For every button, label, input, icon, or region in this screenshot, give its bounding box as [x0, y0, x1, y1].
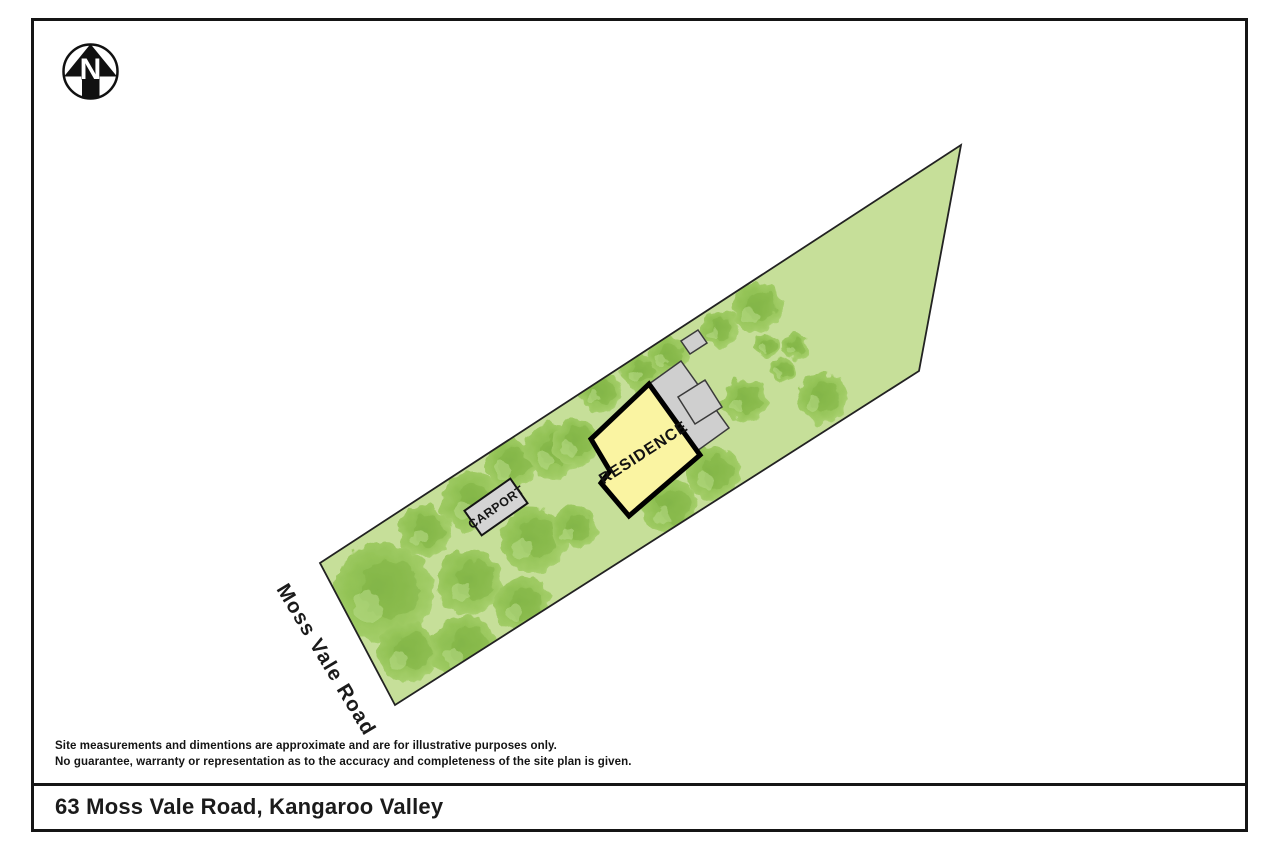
title-separator	[31, 783, 1248, 786]
tree	[723, 378, 767, 422]
north-letter: N	[80, 53, 102, 86]
tree	[755, 334, 779, 358]
tree	[399, 505, 451, 557]
tree	[553, 506, 597, 550]
tree	[437, 549, 503, 615]
north-arrow-icon: N	[64, 44, 118, 99]
tree	[378, 622, 438, 682]
tree	[782, 333, 808, 359]
tree	[797, 373, 847, 423]
site-plan-drawing: CARPORT RESIDENCE Moss Vale Road N	[0, 0, 1280, 854]
site-plan-page: CARPORT RESIDENCE Moss Vale Road N Site …	[0, 0, 1280, 854]
tree	[771, 358, 795, 382]
tree	[579, 371, 621, 413]
plan-title: 63 Moss Vale Road, Kangaroo Valley	[55, 794, 443, 820]
disclaimer-line-1: Site measurements and dimentions are app…	[55, 739, 632, 755]
tree	[431, 615, 497, 681]
disclaimer-text: Site measurements and dimentions are app…	[55, 739, 632, 770]
disclaimer-line-2: No guarantee, warranty or representation…	[55, 755, 632, 771]
